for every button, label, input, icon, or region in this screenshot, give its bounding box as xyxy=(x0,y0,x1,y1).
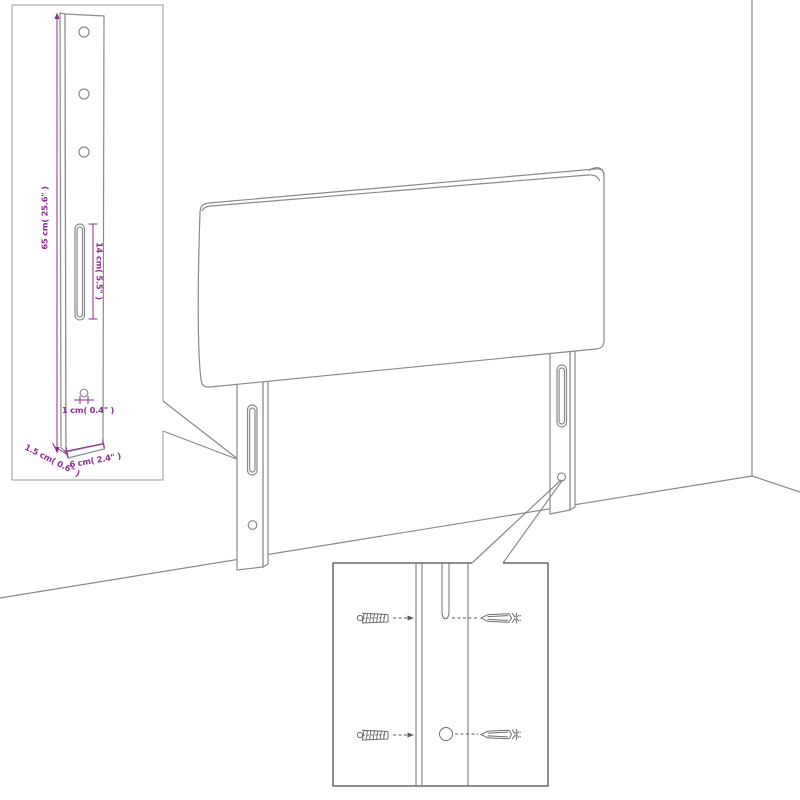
callout-line-upper xyxy=(163,401,237,458)
right-leg xyxy=(550,341,575,514)
dimension-label-leg-height: 65 cm( 25.6" ) xyxy=(40,186,50,250)
mounting-hole-closeup xyxy=(440,728,453,741)
left-leg xyxy=(237,376,268,570)
floor-line-right xyxy=(752,476,800,492)
inset-leg-detail: 65 cm( 25.6" ) 14 cm( 5.5" ) 1 cm( 0.4" … xyxy=(12,5,163,480)
left-leg-side-face xyxy=(263,376,268,567)
dimension-label-hole-size: 1 cm( 0.4" ) xyxy=(62,405,115,415)
callout-line-lower xyxy=(163,431,237,459)
callout-line-right xyxy=(503,480,563,563)
dimension-label-slot-length: 14 cm( 5.5" ) xyxy=(95,242,105,300)
inset-mounting-detail xyxy=(333,563,548,786)
headboard-panel xyxy=(198,168,604,387)
detail-callout-left-leg xyxy=(163,401,237,459)
detail-callout-screw-hole xyxy=(472,480,563,563)
right-leg-side-face xyxy=(570,341,575,510)
inset-mounting-bg xyxy=(333,563,548,786)
headboard-assembly-diagram: 65 cm( 25.6" ) 14 cm( 5.5" ) 1 cm( 0.4" … xyxy=(0,0,800,800)
callout-line-left xyxy=(472,480,561,563)
